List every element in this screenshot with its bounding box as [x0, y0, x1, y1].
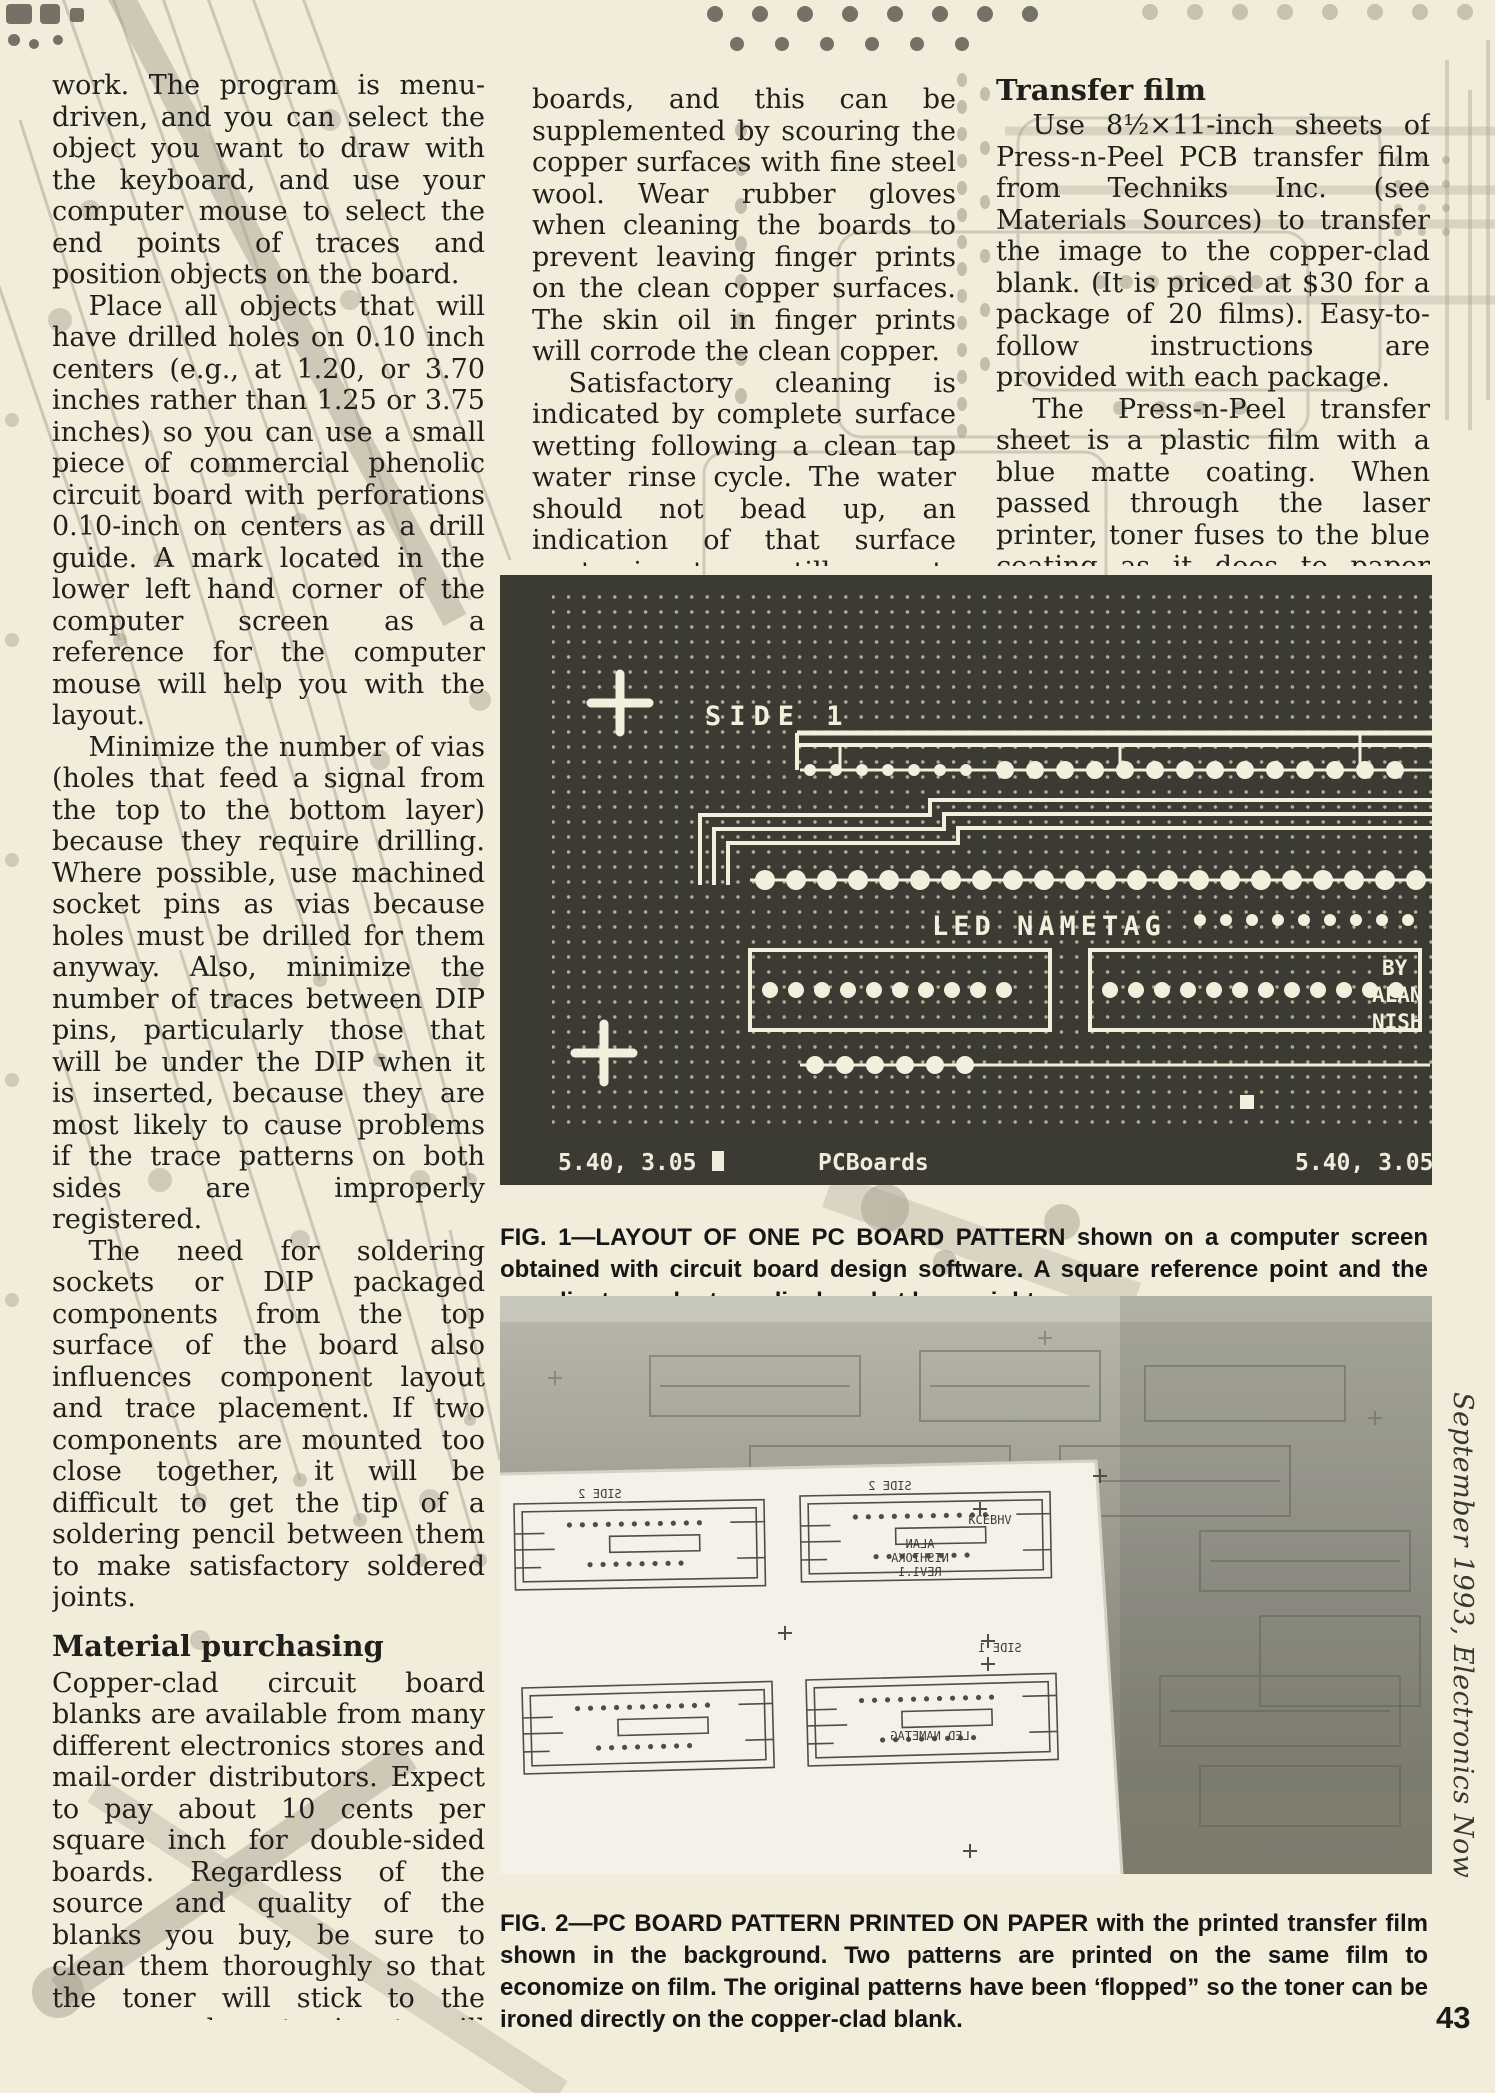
fig2-side2-right-label: SIDE 2: [868, 1479, 911, 1493]
paragraph: The need for soldering sockets or DIP pa…: [52, 1236, 485, 1614]
section-heading-material-purchasing: Material purchasing: [52, 1630, 485, 1662]
figure2-photo: SIDE 2 SIDE 2 KCEBHV ALAN NISHIOKA REV1.…: [500, 1296, 1432, 1874]
fig2-author-line3: REV1.1: [898, 1565, 941, 1579]
figure2-caption: FIG. 2—PC BOARD PATTERN PRINTED ON PAPER…: [500, 1908, 1428, 2036]
middle-column: boards, and this can be supplemented by …: [532, 84, 956, 566]
fig1-board-title: LED NAMETAG: [932, 911, 1166, 942]
left-column: work. The program is menu-driven, and yo…: [52, 70, 485, 2020]
right-column: Transfer film Use 8½×11-inch sheets of P…: [996, 74, 1430, 566]
paragraph: Satisfactory cleaning is indicated by co…: [532, 368, 956, 567]
coordinate-cursor: [712, 1151, 724, 1171]
page-number: 43: [1436, 2000, 1470, 2036]
fig1-coordinate-readout-right: 5.40, 3.05: [1295, 1150, 1432, 1176]
paragraph: work. The program is menu-driven, and yo…: [52, 70, 485, 291]
paragraph: Use 8½×11-inch sheets of Press-n-Peel PC…: [996, 110, 1430, 394]
paragraph: Minimize the number of vias (holes that …: [52, 732, 485, 1236]
figure1-screen-image: SIDE 1: [500, 575, 1432, 1185]
fig2-side2-left-label: SIDE 2: [578, 1487, 621, 1501]
fig1-side-label: SIDE 1: [705, 701, 851, 732]
paper-sheet: [500, 1461, 1122, 1874]
square-reference-point: [1240, 1095, 1254, 1109]
figure2-printed-pattern-photo: SIDE 2 SIDE 2 KCEBHV ALAN NISHIOKA REV1.…: [500, 1296, 1432, 1878]
paragraph: Copper-clad circuit board blanks are ava…: [52, 1668, 485, 2021]
paragraph: boards, and this can be supplemented by …: [532, 84, 956, 368]
fig1-byline-line3: NISH: [1372, 1010, 1423, 1034]
fig2-corner-code-label: KCEBHV: [968, 1513, 1011, 1527]
fig1-coordinate-readout-left: 5.40, 3.05: [558, 1150, 696, 1176]
fig1-byline-line2: ALAN: [1372, 983, 1423, 1007]
paragraph: Place all objects that will have drilled…: [52, 291, 485, 732]
fig1-software-name: PCBoards: [818, 1150, 929, 1176]
fig2-side1-label: SIDE 1: [978, 1641, 1021, 1655]
magazine-page: work. The program is menu-driven, and yo…: [0, 0, 1495, 2093]
fig2-author-line2: NISHIOKA: [890, 1551, 949, 1565]
fig1-byline-line1: BY: [1382, 956, 1408, 980]
figure1-pc-board-layout-screenshot: SIDE 1: [500, 575, 1432, 1189]
fig2-author-line1: ALAN: [906, 1537, 935, 1551]
section-heading-transfer-film: Transfer film: [996, 74, 1430, 106]
fig2-nametag-label: LED NAMETAG: [890, 1729, 969, 1743]
magazine-edition-vertical: September 1993, Electronics Now: [1447, 1392, 1478, 1878]
paragraph: The Press-n-Peel transfer sheet is a pla…: [996, 394, 1430, 567]
